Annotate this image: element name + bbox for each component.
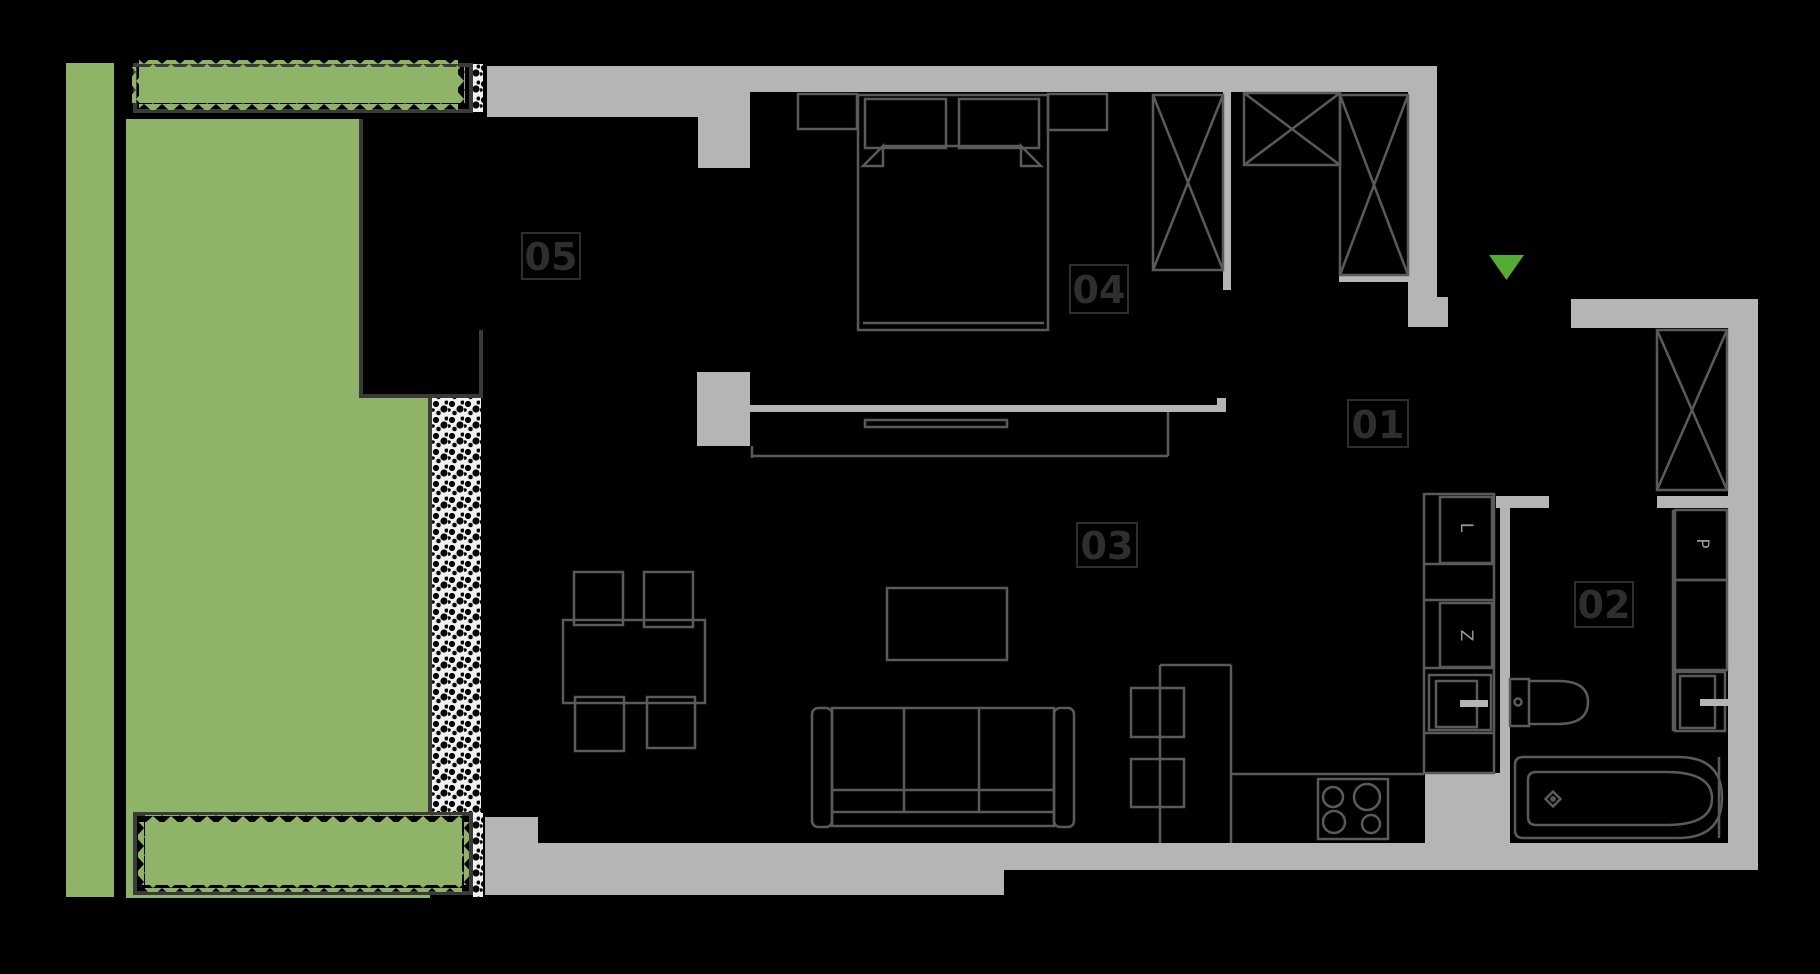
room-label-02: 02 xyxy=(1575,582,1633,627)
planter-top-teeth-left xyxy=(132,67,139,103)
bathroom-letter-P: P xyxy=(1692,538,1712,549)
wall-block-below-kitchen xyxy=(1425,773,1510,845)
planter-top-fill xyxy=(139,67,458,103)
wall-right-outer xyxy=(1728,328,1758,870)
wall-pier-terrace-bottom xyxy=(697,372,750,446)
wall-pier-terrace-top xyxy=(698,66,750,168)
planter-top-teeth-right xyxy=(458,67,465,103)
terrace-step-notch xyxy=(363,330,481,396)
basin-faucet xyxy=(1700,699,1728,706)
planter-bottom-teeth-top xyxy=(145,815,462,822)
wall-bottom-thick xyxy=(485,843,1004,895)
wall-bottom-thin xyxy=(1004,843,1758,870)
wall-top-main xyxy=(750,66,1437,92)
wall-bath-door-stub-right xyxy=(1657,496,1728,508)
gravel-strip-top xyxy=(473,64,483,112)
planter-bottom-teeth-left xyxy=(138,822,145,885)
gravel-strip-bottom xyxy=(473,813,483,897)
wall-bathroom-top xyxy=(1571,299,1758,328)
kitchen-faucet xyxy=(1460,700,1488,707)
room-label-04: 04 xyxy=(1070,265,1128,313)
wall-entry-right xyxy=(1408,92,1437,327)
planter-bottom xyxy=(135,814,471,893)
planter-top-teeth-top xyxy=(139,60,458,67)
room-label-05: 05 xyxy=(522,233,580,279)
planter-bottom-teeth-bottom xyxy=(145,885,462,892)
planter-top xyxy=(132,60,471,111)
kitchen-letter-Z: Z xyxy=(1456,630,1476,643)
wall-bedroom-bottom-notch xyxy=(1217,398,1226,405)
room-label-03-text: 03 xyxy=(1081,524,1134,568)
wall-entry-right-step xyxy=(1437,297,1448,327)
wall-bedroom-bottom xyxy=(750,405,1226,412)
planter-top-teeth-bottom xyxy=(139,103,458,110)
room-label-05-text: 05 xyxy=(525,235,578,279)
lawn-upper xyxy=(126,119,363,398)
room-label-04-text: 04 xyxy=(1073,268,1126,312)
room-label-02-text: 02 xyxy=(1578,583,1631,627)
room-label-03: 03 xyxy=(1077,523,1137,568)
floor-plan-svg: 05 04 03 01 02 L Z P xyxy=(0,0,1820,974)
kitchen-letter-L: L xyxy=(1456,523,1476,533)
room-label-01: 01 xyxy=(1348,400,1408,447)
planter-bottom-teeth-right xyxy=(462,822,469,885)
room-label-01-text: 01 xyxy=(1352,403,1405,447)
floor-plan-canvas: 05 04 03 01 02 L Z P xyxy=(0,0,1820,974)
garden-strip-left xyxy=(66,63,114,897)
planter-bottom-fill xyxy=(145,822,462,885)
gravel-strip-middle xyxy=(432,398,481,813)
wall-bottom-step xyxy=(485,817,538,843)
wall-top-left-thick xyxy=(487,66,698,117)
